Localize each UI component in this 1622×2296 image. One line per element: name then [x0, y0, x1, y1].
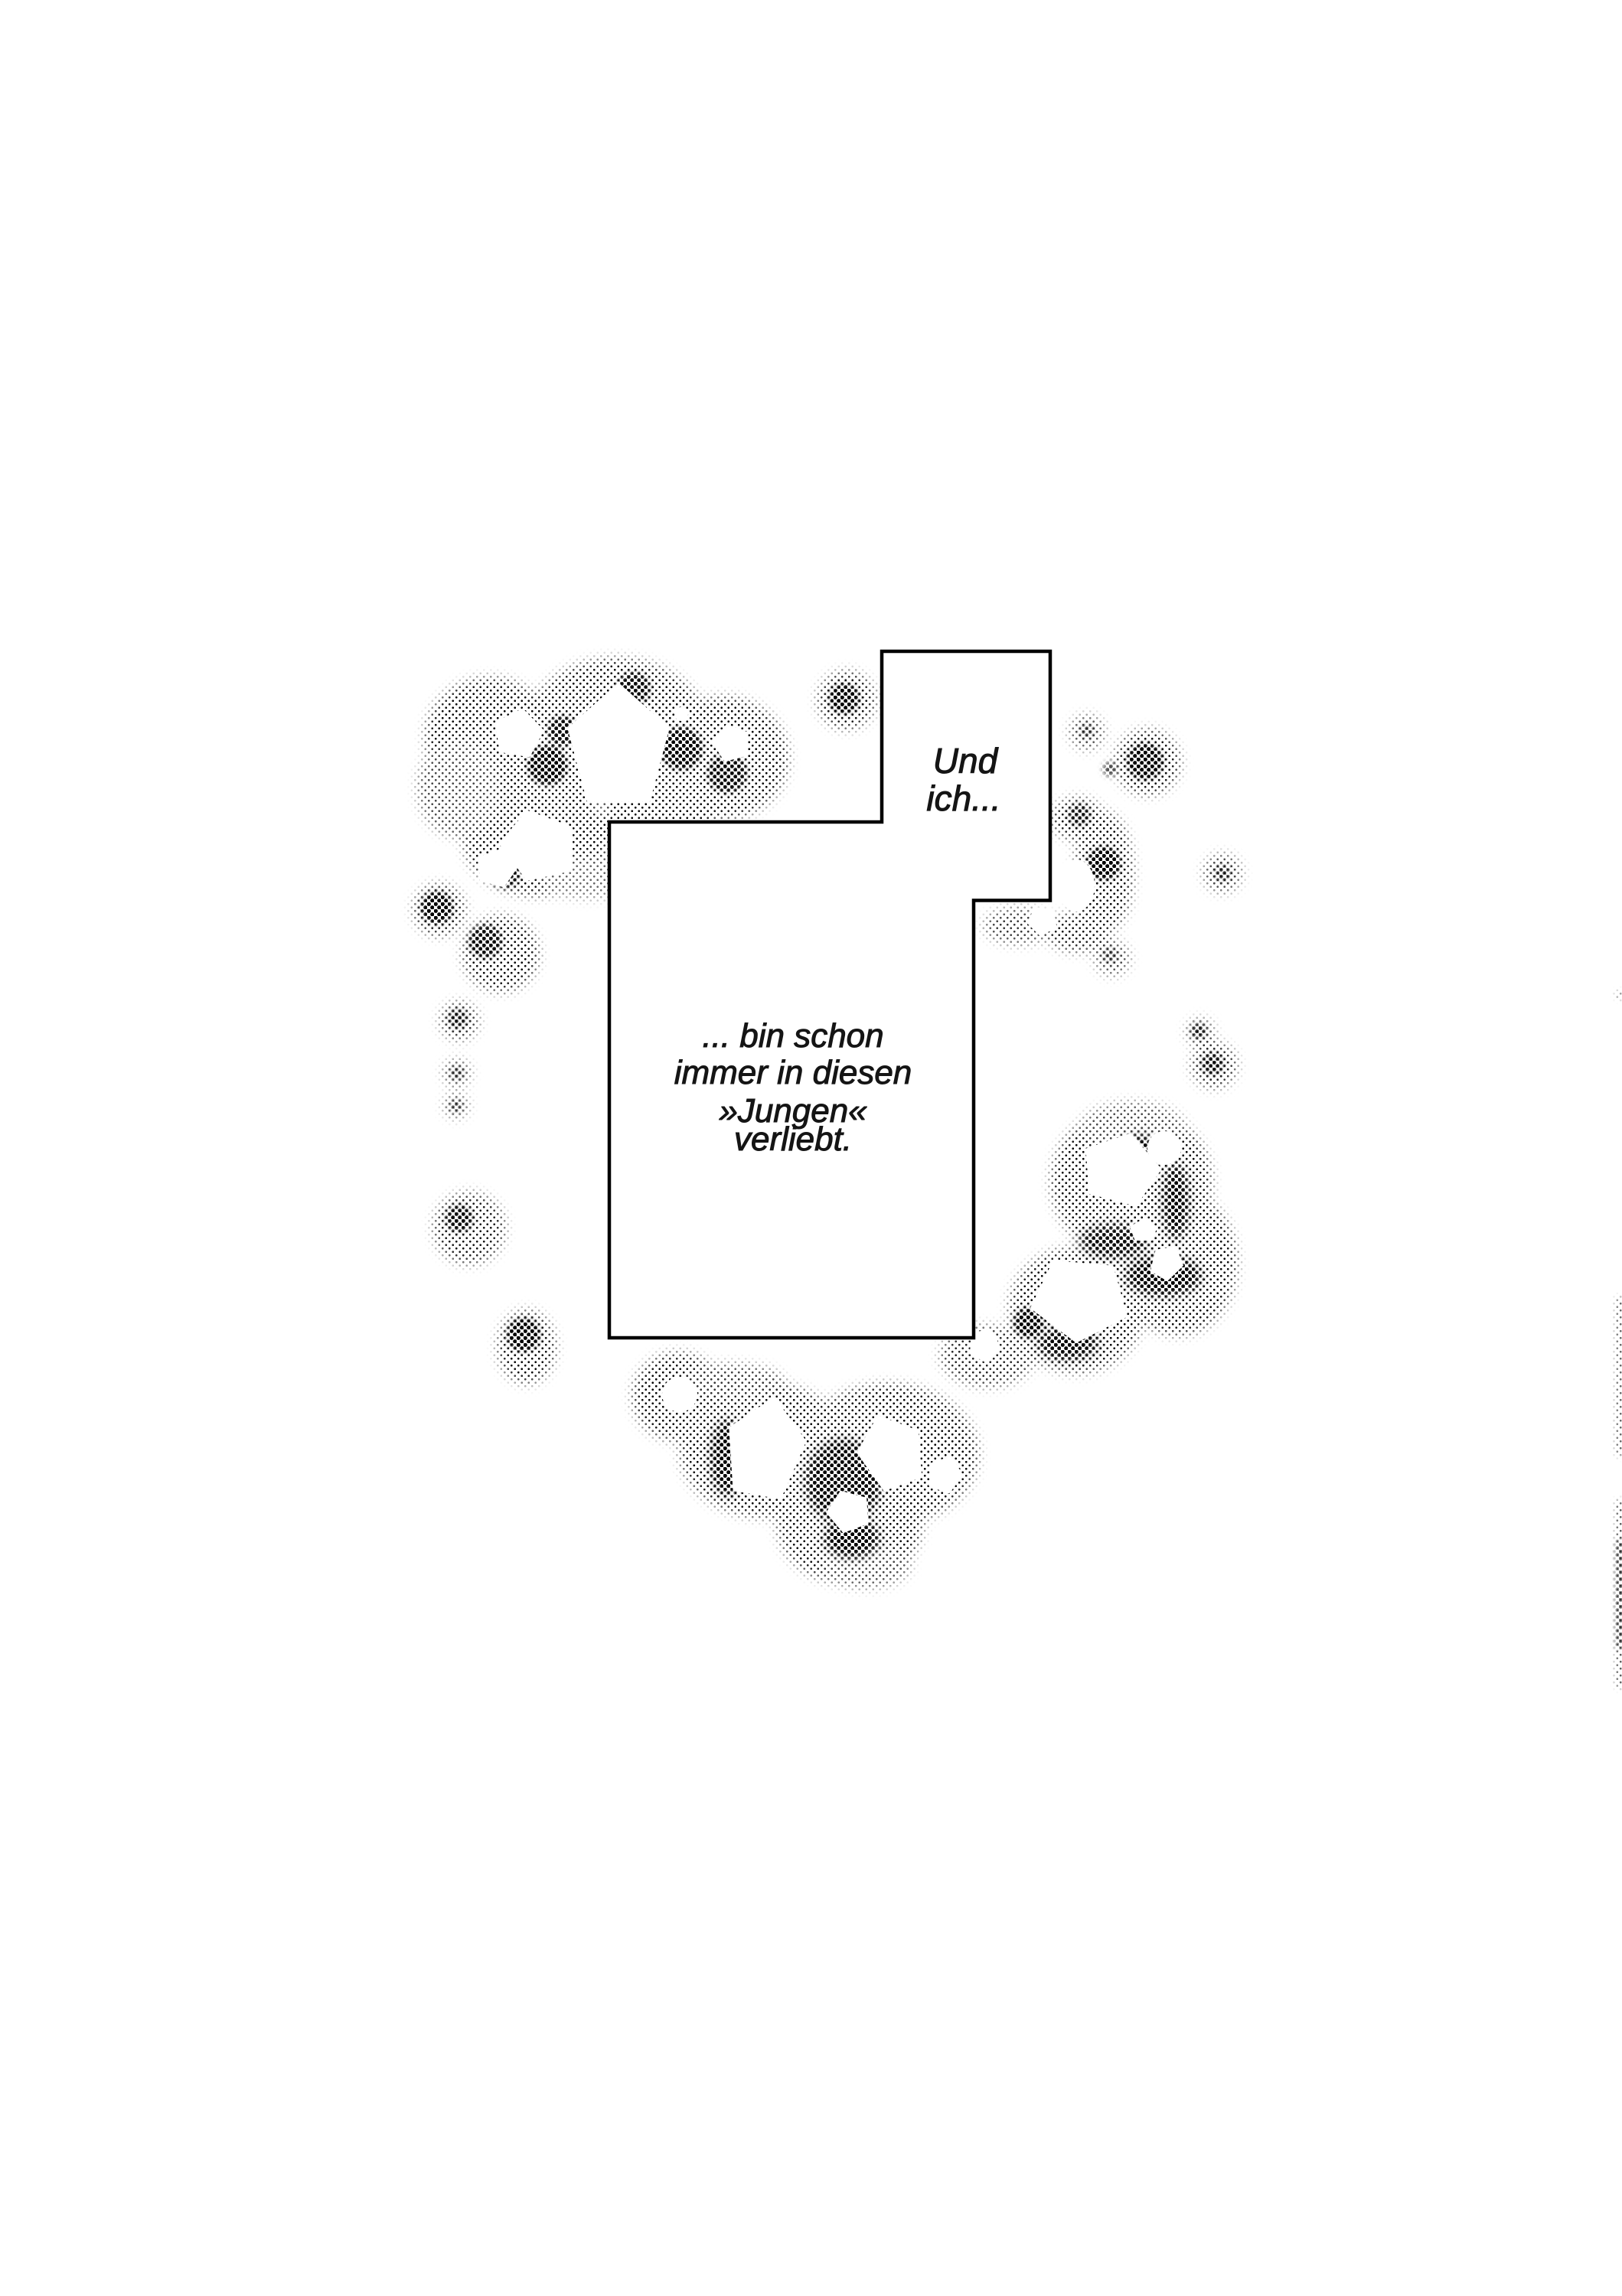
svg-text:... bin schon: ... bin schon — [702, 1017, 883, 1055]
svg-text:ich...: ich... — [926, 778, 1000, 818]
svg-text:verliebt.: verliebt. — [734, 1120, 852, 1158]
svg-text:Und: Und — [933, 741, 999, 781]
svg-text:immer in diesen: immer in diesen — [674, 1054, 912, 1091]
